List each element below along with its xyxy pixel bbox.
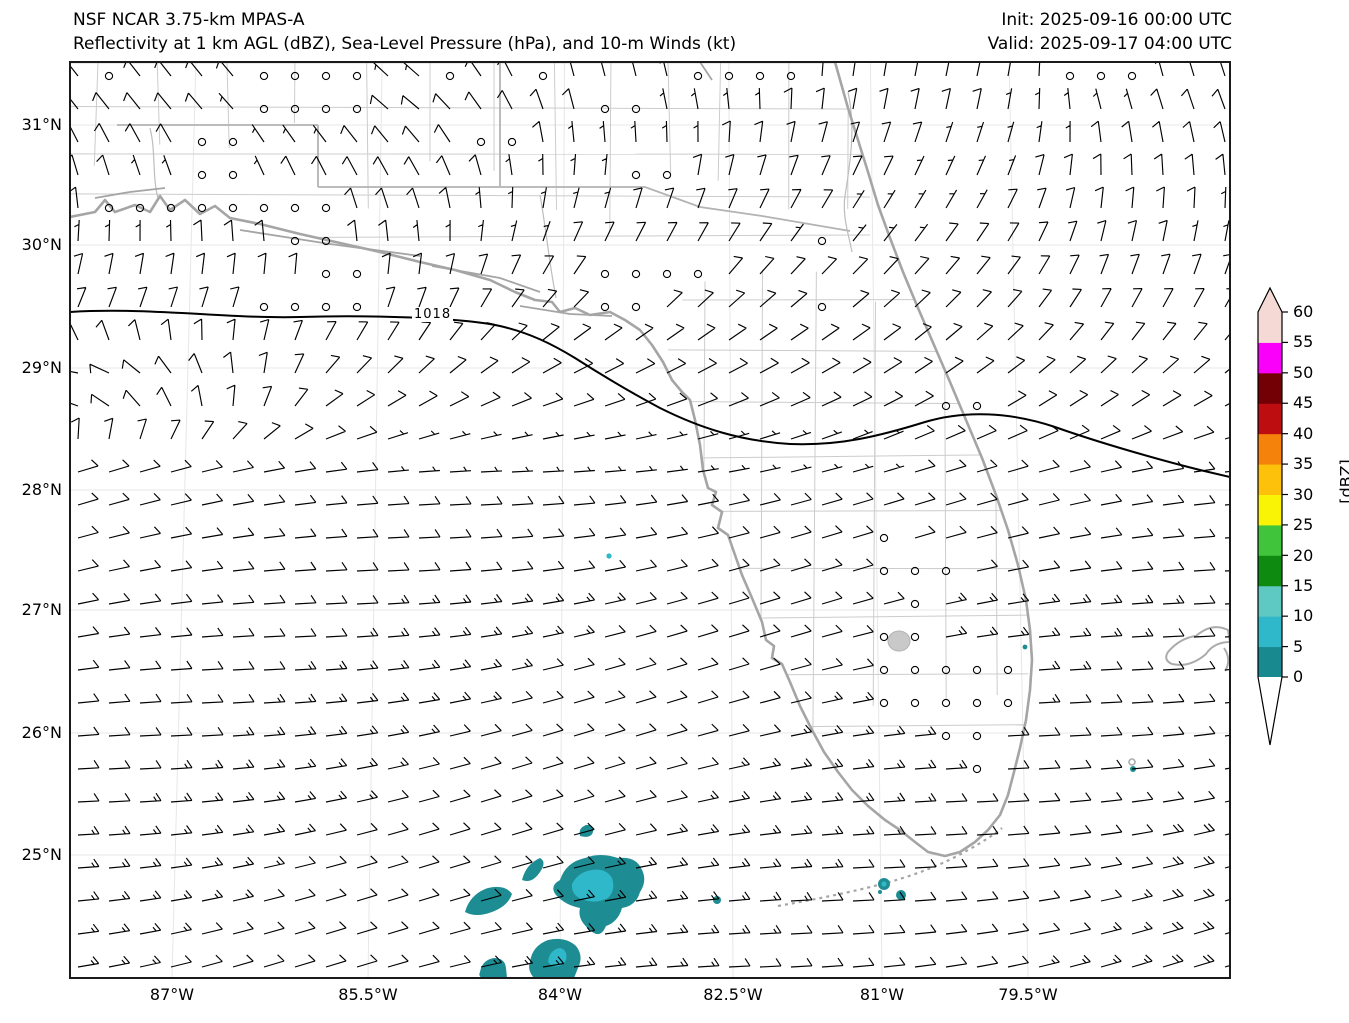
lat-tick-label: 28°N [0, 480, 62, 500]
colorbar [1258, 288, 1288, 745]
lake-okeechobee [888, 631, 910, 651]
lon-tick-label: 81°W [860, 985, 904, 1004]
colorbar-tick-label: 20 [1293, 546, 1313, 566]
lon-tick-label: 82.5°W [703, 985, 762, 1004]
lon-tick-label: 85.5°W [338, 985, 397, 1004]
lat-tick-label: 31°N [0, 115, 62, 135]
coastline [70, 62, 1032, 856]
colorbar-tick-label: 5 [1293, 637, 1303, 657]
lat-tick-label: 26°N [0, 723, 62, 743]
lon-tick-label: 84°W [538, 985, 582, 1004]
figure-root: NSF NCAR 3.75-km MPAS-A Reflectivity at … [0, 0, 1349, 1023]
lon-tick-label: 79.5°W [998, 985, 1057, 1004]
colorbar-tick-label: 40 [1293, 424, 1313, 444]
lat-tick-label: 27°N [0, 600, 62, 620]
colorbar-tick-label: 50 [1293, 363, 1313, 383]
bahamas-coast [1166, 627, 1230, 671]
colorbar-tick-label: 30 [1293, 485, 1313, 505]
wind-barbs [57, 55, 1246, 967]
colorbar-tick-label: 15 [1293, 576, 1313, 596]
colorbar-tick-label: 10 [1293, 606, 1313, 626]
isobar-value-label: 1018 [412, 307, 453, 322]
map-layers [57, 55, 1246, 978]
lat-tick-label: 25°N [0, 845, 62, 865]
map-canvas [0, 0, 1349, 1023]
colorbar-unit-label: [dBZ] [1337, 439, 1349, 525]
colorbar-tick-label: 35 [1293, 454, 1313, 474]
colorbar-tick-label: 60 [1293, 302, 1313, 322]
lat-tick-label: 29°N [0, 358, 62, 378]
lat-tick-label: 30°N [0, 235, 62, 255]
lon-tick-label: 87°W [150, 985, 194, 1004]
colorbar-tick-label: 45 [1293, 393, 1313, 413]
map-frame [70, 62, 1230, 978]
colorbar-tick-label: 0 [1293, 667, 1303, 687]
colorbar-tick-label: 25 [1293, 515, 1313, 535]
colorbar-tick-label: 55 [1293, 332, 1313, 352]
